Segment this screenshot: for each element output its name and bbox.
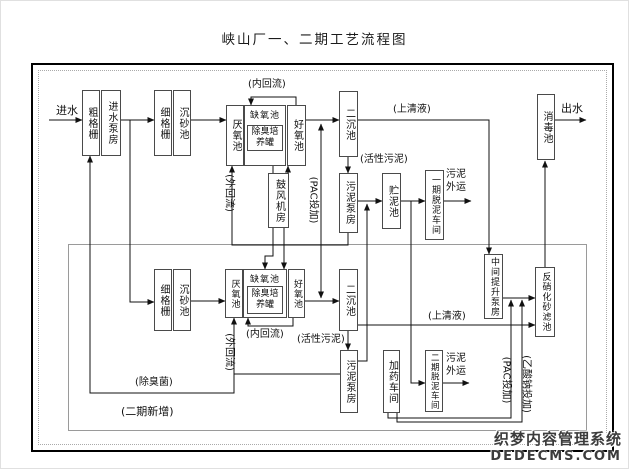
node-denitrification-filter: 反硝化砂滤池	[535, 267, 555, 337]
node-grit-chamber-2: 沉砂池	[173, 269, 191, 331]
node-anoxic-tank-1-label: 缺氧池	[245, 108, 285, 121]
edge-sludge-pump2-up-to-storage	[358, 204, 367, 361]
node-secondary-clarifier-2: 二沉池	[339, 269, 358, 331]
watermark: 织梦内容管理系统 DEDECMS.COM	[490, 428, 622, 464]
node-fine-screen-1: 细格栅	[154, 90, 172, 156]
label-effluent: 出水	[561, 102, 583, 116]
label-external-recycle-2: (外回流)	[222, 333, 235, 371]
node-phase1-dewatering: 一期脱泥车间	[425, 170, 444, 240]
node-intermediate-lift-pump: 中间提升泵房	[484, 254, 503, 319]
flow-diagram-canvas: 峡山厂一、二期工艺流程图 织梦内容管理系统 DEDECMS.COM 粗格栅进水泵…	[0, 0, 629, 469]
node-anaerobic-tank-2: 厌氧池	[225, 269, 243, 318]
node-fine-screen-2: 细格栅	[154, 269, 172, 331]
edge-blower-to-odor-tank-2	[265, 228, 273, 269]
node-aerobic-tank-2: 好氧池	[288, 269, 305, 318]
label-pac-dosing-2: (PAC投加)	[499, 357, 512, 404]
node-anoxic-tank-2-label: 缺氧池	[244, 272, 286, 285]
node-sludge-pump-house-1: 污泥泵房	[339, 173, 358, 233]
label-sludge-out-1: 污泥 外运	[446, 169, 466, 194]
label-activated-sludge-2: (活性污泥)	[297, 334, 345, 347]
watermark-line1: 织梦内容管理系统	[490, 428, 622, 449]
node-grit-chamber-1: 沉砂池	[173, 90, 191, 156]
edge-external-recycle-1	[232, 166, 348, 245]
node-phase2-dewatering: 二期脱泥车间	[425, 350, 443, 412]
label-sludge-out-2: 污泥 外运	[446, 353, 466, 378]
node-sludge-storage-tank: 贮泥池	[382, 173, 401, 229]
label-internal-recycle-2: (内回流)	[246, 329, 284, 342]
label-activated-sludge-1: (活性污泥)	[360, 154, 408, 167]
watermark-line2: DEDECMS.COM	[490, 449, 622, 464]
edge-internal-recycle-1	[251, 97, 296, 105]
label-influent: 进水	[56, 104, 78, 118]
label-deodorant-bacteria: (除臭菌)	[135, 377, 173, 390]
node-dosing-workshop: 加药车间	[383, 350, 400, 413]
node-odor-culture-tank-2: 除臭培 养罐	[247, 286, 283, 314]
node-disinfection-tank: 消毒池	[537, 94, 555, 160]
node-anaerobic-tank-1: 厌氧池	[226, 105, 244, 166]
edge-storage-to-phase2-dewatering	[411, 201, 425, 383]
label-sodium-acetate-dosing: (乙酸钠投加)	[519, 355, 532, 413]
edge-internal-recycle-2	[248, 318, 293, 326]
node-odor-culture-tank-1: 除臭培 养罐	[247, 125, 283, 151]
label-external-recycle-1: (外回流)	[222, 174, 235, 212]
flow-edges-layer	[1, 1, 629, 469]
node-secondary-clarifier-1: 二沉池	[339, 91, 358, 157]
node-sludge-pump-house-2: 污泥泵房	[340, 350, 358, 413]
node-inlet-pump-house: 进水泵房	[101, 90, 121, 156]
label-internal-recycle-1: (内回流)	[248, 79, 286, 92]
node-aerobic-tank-1: 好氧池	[287, 105, 306, 166]
label-supernatant-2: (上清液)	[428, 311, 466, 324]
node-coarse-screen-1: 粗格栅	[82, 90, 100, 156]
label-supernatant-1: (上清液)	[393, 104, 431, 117]
edge-supernatant1-to-lift-pump	[358, 120, 489, 254]
node-blower-room: 鼓风机房	[268, 173, 289, 228]
diagram-title: 峡山厂一、二期工艺流程图	[1, 28, 628, 48]
edge-pump-down-to-fine-screen-2	[130, 120, 154, 302]
label-phase2-new: (二期新增)	[121, 405, 174, 419]
label-pac-dosing-1: (PAC投加)	[306, 177, 319, 224]
